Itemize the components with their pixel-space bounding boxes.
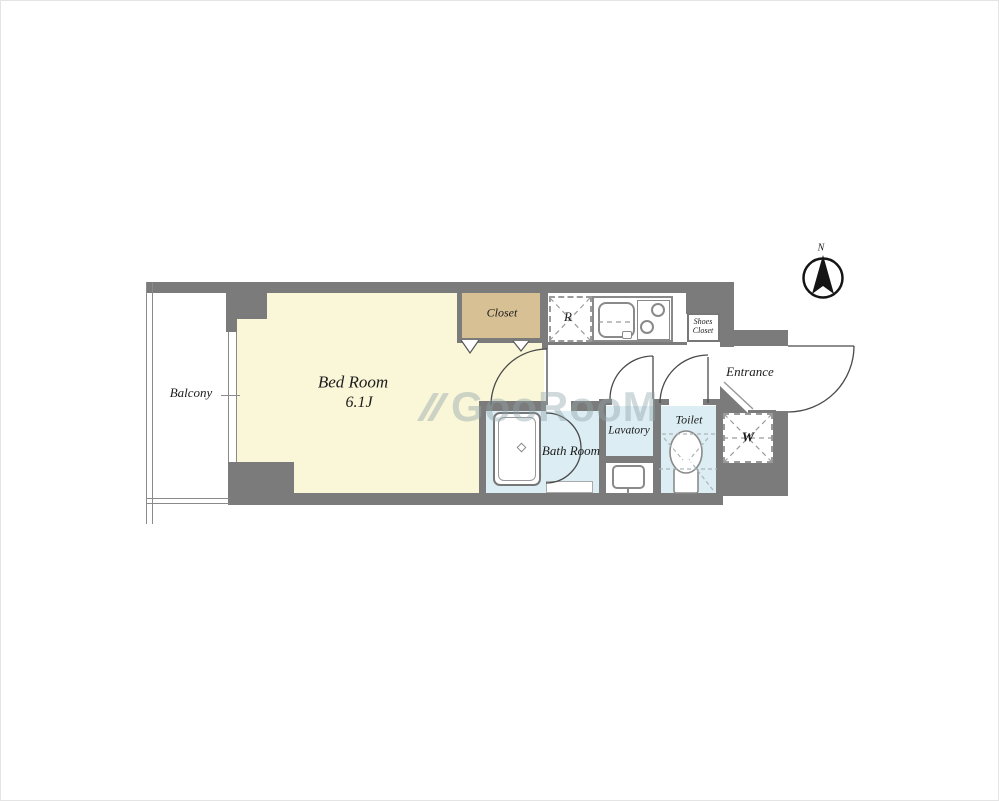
entrance-door-arc bbox=[788, 346, 854, 412]
wall-bottom-left-block bbox=[228, 462, 294, 505]
bedroom-size-label: 6.1J bbox=[345, 394, 372, 412]
lavatory-label: Lavatory bbox=[608, 425, 650, 438]
wall-toilet-top-left-nub bbox=[653, 399, 669, 405]
wall-below-washer bbox=[720, 463, 788, 496]
lavatory-basin bbox=[612, 465, 645, 489]
shoes-closet-label: Shoes Closet bbox=[693, 318, 713, 336]
compass-north-label: N bbox=[818, 243, 825, 254]
bathroom-label: Bath Room bbox=[542, 444, 600, 458]
bathtub-inner bbox=[498, 417, 536, 481]
bedroom-label: Bed Room bbox=[318, 374, 388, 393]
floor-plan-canvas: Balcony Bed Room 6.1J Closet R Shoes Clo… bbox=[0, 0, 999, 801]
wall-entrance-top bbox=[734, 330, 788, 346]
wall-lavatory-toilet bbox=[653, 399, 661, 493]
entrance-label: Entrance bbox=[726, 365, 774, 379]
entrance-step-line bbox=[724, 382, 753, 409]
wall-bottom bbox=[294, 493, 723, 505]
toilet-door-arc bbox=[660, 355, 708, 403]
shoes-closet-label-line2: Closet bbox=[693, 327, 713, 336]
bath-threshold bbox=[546, 481, 593, 493]
wall-top-right-block bbox=[686, 282, 734, 314]
refrigerator-label: R bbox=[564, 310, 572, 324]
wall-lavatory-top-nub bbox=[599, 399, 612, 405]
balcony-rail-left-inner bbox=[152, 282, 153, 524]
balcony-rail-bottom-outer bbox=[146, 498, 230, 499]
closet-label: Closet bbox=[487, 306, 518, 319]
washer-label: W bbox=[742, 430, 754, 445]
wall-kitchen-counter-bottom bbox=[546, 342, 687, 345]
wall-top-left-step bbox=[237, 289, 267, 319]
window-line-inner bbox=[236, 332, 237, 462]
wall-bath-top-left bbox=[479, 401, 546, 411]
window-line-outer bbox=[228, 332, 229, 462]
wall-toilet-top-right-nub bbox=[703, 399, 723, 405]
balcony-label: Balcony bbox=[170, 386, 213, 400]
wall-entrance-below-door bbox=[773, 411, 788, 464]
wall-toilet-right bbox=[716, 400, 723, 493]
wall-bedroom-bath bbox=[479, 411, 486, 493]
stove-burner-top bbox=[651, 303, 665, 317]
window-center-tick bbox=[221, 395, 240, 396]
wall-lavatory-divider bbox=[606, 456, 653, 463]
lavatory-basin-tap bbox=[627, 488, 629, 494]
toilet-label: Toilet bbox=[676, 413, 703, 426]
lavatory-door-arc bbox=[610, 356, 653, 399]
wall-shoes-closet-right bbox=[720, 314, 734, 347]
compass-needle bbox=[812, 255, 834, 294]
sink-faucet bbox=[622, 331, 632, 339]
balcony-rail-bottom-inner bbox=[146, 503, 230, 504]
wall-left-upper bbox=[226, 282, 237, 332]
wall-bath-top-right bbox=[571, 401, 599, 411]
compass-circle bbox=[804, 259, 843, 298]
stove-burner-bottom bbox=[640, 320, 654, 334]
balcony-rail-left-outer bbox=[146, 282, 147, 524]
entrance-chamfer-wall bbox=[720, 386, 748, 413]
